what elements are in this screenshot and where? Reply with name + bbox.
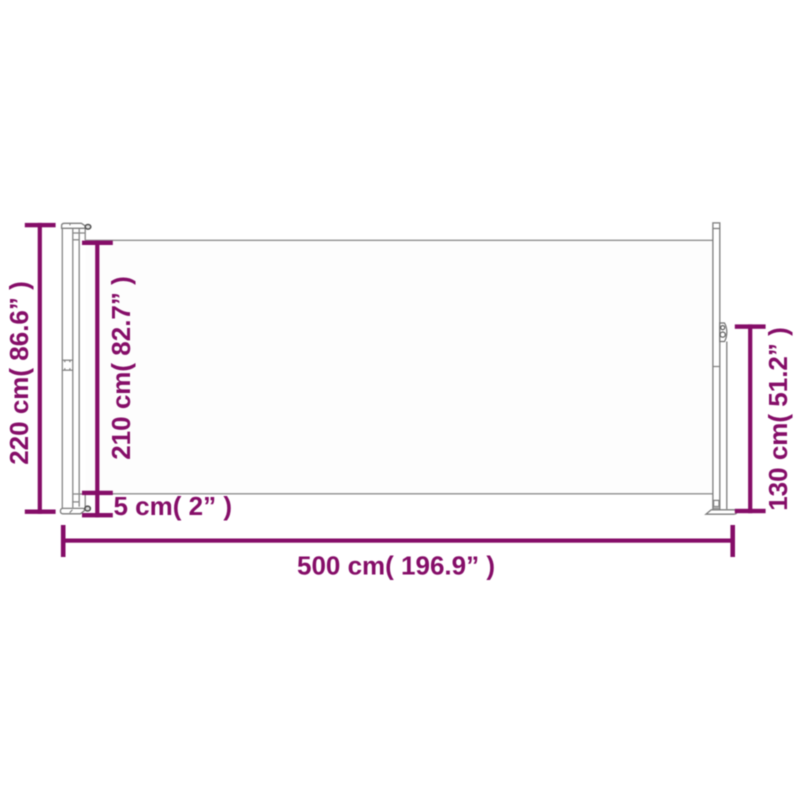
- svg-text:500 cm( 196.9” ): 500 cm( 196.9” ): [297, 551, 495, 581]
- svg-text:210 cm( 82.7” ): 210 cm( 82.7” ): [106, 276, 136, 460]
- svg-text:130 cm( 51.2” ): 130 cm( 51.2” ): [763, 327, 793, 511]
- svg-text:220 cm( 86.6” ): 220 cm( 86.6” ): [4, 281, 34, 465]
- svg-text:5 cm( 2” ): 5 cm( 2” ): [114, 491, 233, 521]
